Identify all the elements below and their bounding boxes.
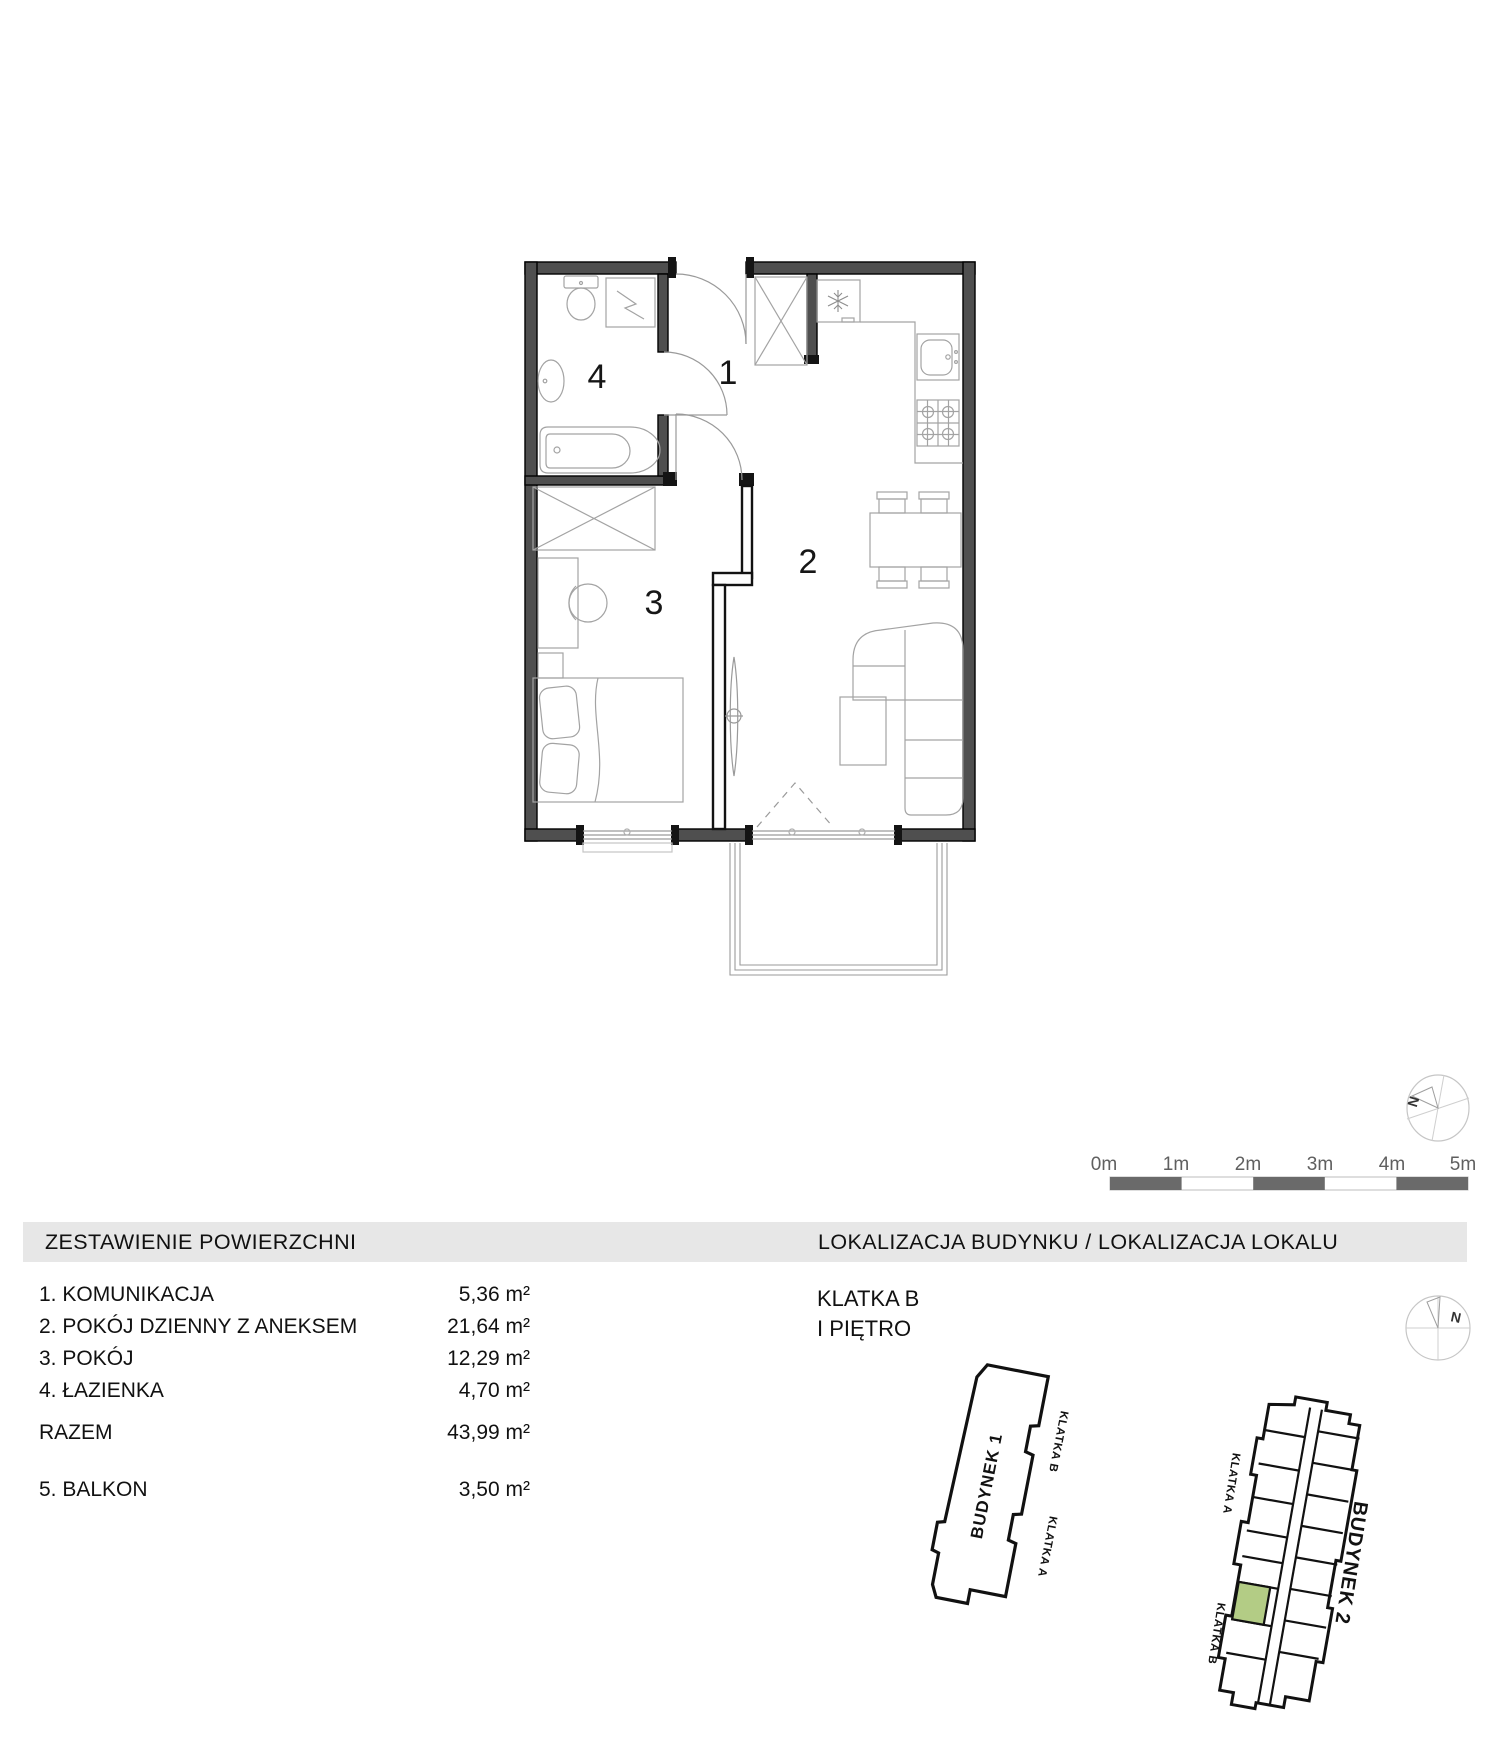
floor-plan-page: 1 2 3 4 0m 1m 2m 3m 4m 5m N <box>0 0 1500 1763</box>
building-2: BUDYNEK 2 KLATKA A KLATKA B <box>1205 1391 1371 1718</box>
wall-bathroom-bottom <box>525 476 676 485</box>
building-1-klatka-b-label: KLATKA B <box>1046 1410 1070 1473</box>
location-diagram: N BUDYNEK 1 KLATKA B KLATKA A <box>923 1296 1470 1719</box>
balcony-label: 5. BALKON <box>39 1474 148 1506</box>
room-area: 21,64 m² <box>447 1311 530 1343</box>
room-area: 12,29 m² <box>447 1343 530 1375</box>
wall-bottom-b <box>672 829 752 841</box>
bed <box>533 678 683 802</box>
hall-wardrobe <box>755 277 807 365</box>
room-area: 4,70 m² <box>459 1375 530 1407</box>
partition-walls <box>713 486 752 829</box>
areas-panel-title: ZESTAWIENIE POWIERZCHNI <box>45 1222 356 1262</box>
section-header-bar: ZESTAWIENIE POWIERZCHNI LOKALIZACJA BUDY… <box>23 1222 1467 1262</box>
total-label: RAZEM <box>39 1417 113 1449</box>
balcony-area: 3,50 m² <box>459 1474 530 1506</box>
wall-bottom-c <box>895 829 975 841</box>
balcony-glazing <box>752 829 895 839</box>
room-label-4: 4 <box>588 358 607 396</box>
table-row: 4. ŁAZIENKA 4,70 m² <box>39 1375 530 1407</box>
compass-location: N <box>1406 1296 1470 1360</box>
chair <box>877 567 907 588</box>
partition-upper <box>742 486 752 578</box>
room3-wardrobe <box>533 487 655 550</box>
sofa <box>853 623 963 815</box>
scale-label-2m: 2m <box>1235 1154 1261 1175</box>
bedside-shelf <box>538 653 563 678</box>
scale-bar: 0m 1m 2m 3m 4m 5m <box>1091 1154 1476 1190</box>
total-area: 43,99 m² <box>447 1417 530 1449</box>
room-labels: 1 2 3 4 <box>588 354 818 622</box>
partition-jog <box>713 573 752 585</box>
building-1: BUDYNEK 1 KLATKA B KLATKA A <box>923 1361 1069 1610</box>
building-2-klatka-a-label: KLATKA A <box>1220 1452 1242 1515</box>
building-1-klatka-a-label: KLATKA A <box>1035 1515 1059 1578</box>
dining-table <box>870 492 961 588</box>
stove <box>917 400 959 446</box>
bathtub <box>540 427 660 473</box>
living-room <box>840 623 963 815</box>
chair <box>919 492 949 513</box>
table-row: 2. POKÓJ DZIENNY Z ANEKSEM 21,64 m² <box>39 1311 530 1343</box>
scale-label-5m: 5m <box>1450 1154 1476 1175</box>
room3-door <box>676 414 742 480</box>
partition-lower <box>713 585 725 829</box>
sliding-door-leaf <box>725 657 743 776</box>
wall-hall-stub <box>807 274 817 360</box>
table-row: 3. POKÓJ 12,29 m² <box>39 1343 530 1375</box>
scale-label-0m: 0m <box>1091 1154 1117 1175</box>
scale-label-3m: 3m <box>1307 1154 1333 1175</box>
floor-label: I PIĘTRO <box>817 1314 919 1344</box>
location-info: KLATKA B I PIĘTRO <box>817 1284 919 1344</box>
room-area: 5,36 m² <box>459 1279 530 1311</box>
areas-table: 1. KOMUNIKACJA 5,36 m² 2. POKÓJ DZIENNY … <box>39 1279 530 1407</box>
room-label-1: 1 <box>719 354 738 392</box>
balcony <box>730 843 947 975</box>
washing-machine <box>606 278 655 327</box>
wall-right <box>963 262 975 841</box>
wall-bottom-a <box>525 829 583 841</box>
compass-plan: N <box>1404 1075 1469 1141</box>
doors <box>664 274 746 776</box>
wall-left <box>525 262 537 841</box>
balcony-door-tilt-symbol <box>757 783 833 827</box>
staircase-label: KLATKA B <box>817 1284 919 1314</box>
room-label-2: 2 <box>799 543 818 581</box>
fridge <box>817 280 860 322</box>
wall-bathroom-right-upper <box>658 274 668 352</box>
room3-window <box>583 829 672 852</box>
apartment-plan: 1 2 3 4 <box>525 257 975 975</box>
scale-label-1m: 1m <box>1163 1154 1189 1175</box>
balcony-row: 5. BALKON 3,50 m² <box>39 1474 530 1506</box>
room-name: 4. ŁAZIENKA <box>39 1375 164 1407</box>
location-panel-title: LOKALIZACJA BUDYNKU / LOKALIZACJA LOKALU <box>818 1222 1338 1262</box>
total-row: RAZEM 43,99 m² <box>39 1417 530 1449</box>
kitchen-counter <box>860 322 963 463</box>
kitchen-sink <box>917 334 959 380</box>
north-icon: N <box>1449 1308 1462 1326</box>
wall-top-left <box>525 262 676 274</box>
scale-label-4m: 4m <box>1379 1154 1405 1175</box>
room3-furniture <box>533 487 683 802</box>
chair <box>877 492 907 513</box>
table-row: 1. KOMUNIKACJA 5,36 m² <box>39 1279 530 1311</box>
coffee-table <box>840 697 886 765</box>
bathroom-sink <box>538 360 564 402</box>
room-name: 2. POKÓJ DZIENNY Z ANEKSEM <box>39 1311 357 1343</box>
room-name: 1. KOMUNIKACJA <box>39 1279 214 1311</box>
entry-door <box>676 274 746 344</box>
snowflake-icon <box>828 290 848 312</box>
kitchen <box>817 280 963 588</box>
room-label-3: 3 <box>645 584 664 622</box>
room-name: 3. POKÓJ <box>39 1343 134 1375</box>
desk-chair <box>569 584 607 622</box>
wall-caps <box>576 257 902 845</box>
toilet <box>564 276 598 320</box>
highlighted-unit <box>1232 1582 1270 1625</box>
chair <box>919 567 949 588</box>
desk <box>538 558 578 648</box>
wall-top-right <box>746 262 975 274</box>
